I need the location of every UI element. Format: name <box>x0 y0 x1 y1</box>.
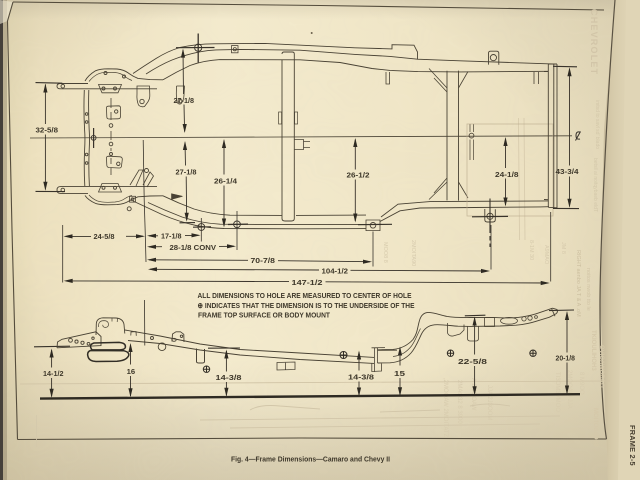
svg-text:14-1/2: 14-1/2 <box>43 369 64 378</box>
svg-text:betsil ai noitqybaeb eldT: betsil ai noitqybaeb eldT <box>592 158 598 212</box>
svg-text:⊕ INDICATES THAT THE DIMENSION: ⊕ INDICATES THAT THE DIMENSION IS TO THE… <box>198 301 415 310</box>
svg-text:28-1/8 CONV: 28-1/8 CONV <box>170 243 217 252</box>
svg-text:27-1/8: 27-1/8 <box>176 168 197 177</box>
svg-text:16: 16 <box>127 367 136 376</box>
svg-text:8-1M 30: 8-1M 30 <box>528 240 534 260</box>
svg-text:24-5/8: 24-5/8 <box>94 232 115 241</box>
svg-text:,2MOOAW 2MOITATZ: ,2MOOAW 2MOITATZ <box>442 378 448 438</box>
svg-text:noitos nwob tto le: noitos nwob tto le <box>585 268 591 311</box>
svg-text:32-5/8: 32-5/8 <box>36 125 59 134</box>
svg-text:CHEVROLET: CHEVROLET <box>589 9 599 75</box>
svg-text:2MOITA90: 2MOITA90 <box>410 240 416 266</box>
svg-text:27-1/8: 27-1/8 <box>174 96 195 105</box>
svg-text:14-3/8: 14-3/8 <box>216 373 242 382</box>
svg-text:TI3OM3VMOO: TI3OM3VMOO <box>554 372 560 412</box>
svg-text:MOITOddOS8: MOITOddOS8 <box>592 408 598 448</box>
svg-text:A9MAO: A9MAO <box>543 245 549 265</box>
svg-text:FRAME 2-5: FRAME 2-5 <box>628 425 637 466</box>
svg-text:ALL DIMENSIONS TO HOLE ARE MEA: ALL DIMENSIONS TO HOLE ARE MEASURED TO C… <box>198 291 412 300</box>
svg-text:24-1/8: 24-1/8 <box>495 170 519 179</box>
svg-text:2MAO32 8 3900: 2MAO32 8 3900 <box>456 380 462 424</box>
svg-text:43-3/4: 43-3/4 <box>556 167 580 176</box>
svg-text:JM 8: JM 8 <box>560 242 566 254</box>
svg-text:OVIOAWOBAO: OVIOAWOBAO <box>598 345 604 388</box>
svg-text:15: 15 <box>394 369 405 378</box>
svg-text:RIGHT aenbo JA T & A .oM: RIGHT aenbo JA T & A .oM <box>575 250 581 317</box>
svg-text:26-1/2: 26-1/2 <box>347 171 370 180</box>
svg-text:Fig. 4—Frame Dimensions—Camaro: Fig. 4—Frame Dimensions—Camaro and Chevy… <box>231 455 390 464</box>
svg-text:8 M9OO: 8 M9OO <box>578 372 584 395</box>
svg-text:147-1/2: 147-1/2 <box>292 278 323 287</box>
svg-text:TKIOULIHOH3: TKIOULIHOH3 <box>590 330 596 371</box>
svg-text:imtsd to savl sd’ blado: imtsd to savl sd’ blado <box>594 100 600 149</box>
svg-text:26-1/4: 26-1/4 <box>214 177 238 186</box>
svg-text:22-5/8: 22-5/8 <box>458 357 487 366</box>
svg-text:20-1/8: 20-1/8 <box>556 353 576 362</box>
svg-text:FRAME TOP SURFACE OR BODY MOUN: FRAME TOP SURFACE OR BODY MOUNT <box>198 311 330 320</box>
svg-text:17-1/8: 17-1/8 <box>161 231 182 240</box>
svg-text:JJA 2J3OOM: JJA 2J3OOM <box>486 385 492 420</box>
svg-text:MOO8 8: MOO8 8 <box>382 242 388 263</box>
svg-text:104-1/2: 104-1/2 <box>322 266 349 275</box>
svg-text:14-3/8: 14-3/8 <box>348 373 374 382</box>
svg-text:70-7/8: 70-7/8 <box>251 256 276 265</box>
